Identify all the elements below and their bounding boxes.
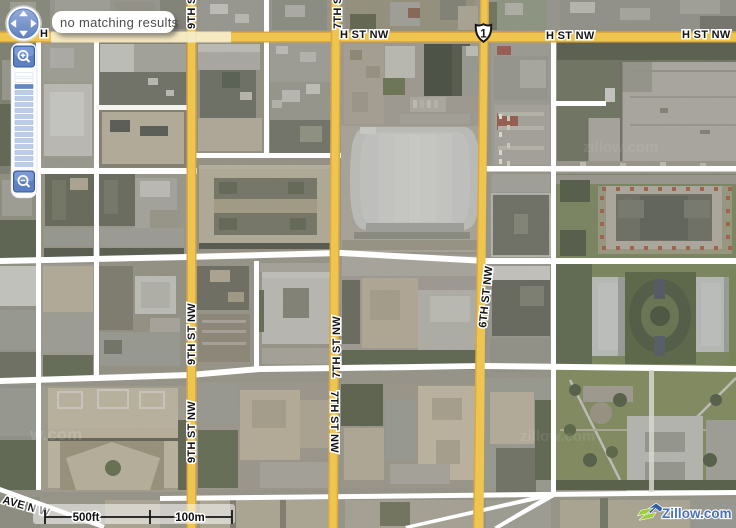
svg-text:7TH ST NW: 7TH ST NW [331,316,343,378]
svg-text:H ST NW: H ST NW [546,30,595,42]
svg-text:H ST NW: H ST NW [340,29,389,41]
svg-text:500ft: 500ft [73,512,100,524]
svg-text:w.com: w.com [29,425,82,444]
svg-text:H: H [40,28,48,40]
svg-text:Zillow.com: Zillow.com [662,506,732,521]
svg-text:H ST NW: H ST NW [682,29,731,41]
svg-text:9TH ST NW: 9TH ST NW [186,303,198,365]
svg-text:9TH ST NW: 9TH ST NW [186,401,198,463]
svg-text:9TH ST: 9TH ST [186,0,198,29]
svg-text:7TH ST NW: 7TH ST NW [328,391,340,453]
svg-text:1: 1 [480,29,487,41]
svg-text:zillow.com: zillow.com [583,139,658,156]
svg-text:7TH ST N: 7TH ST N [332,0,344,29]
svg-text:100m: 100m [175,512,204,524]
svg-text:zillow.com: zillow.com [520,428,595,445]
